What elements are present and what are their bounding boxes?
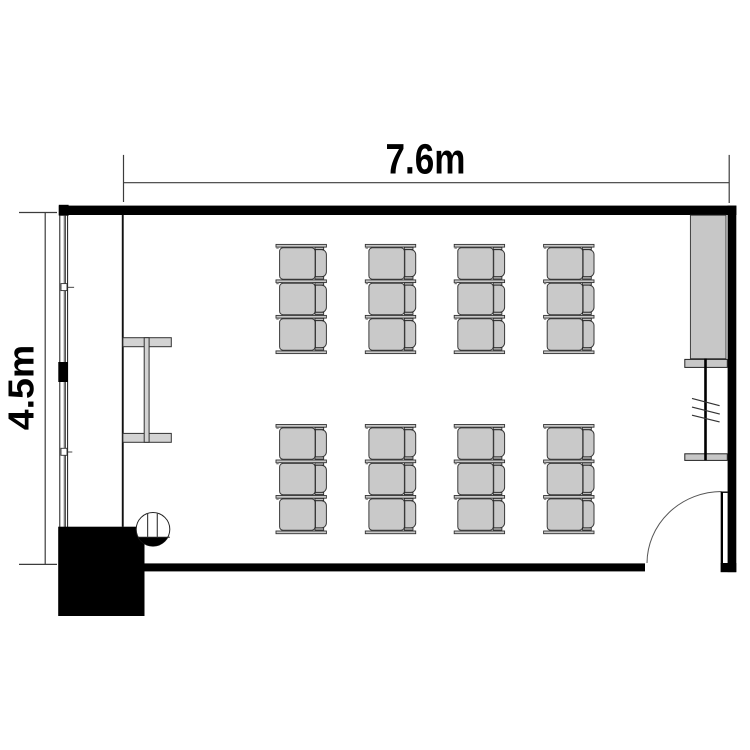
svg-text:4.5m: 4.5m bbox=[1, 345, 42, 431]
svg-text:7.6m: 7.6m bbox=[386, 137, 466, 184]
